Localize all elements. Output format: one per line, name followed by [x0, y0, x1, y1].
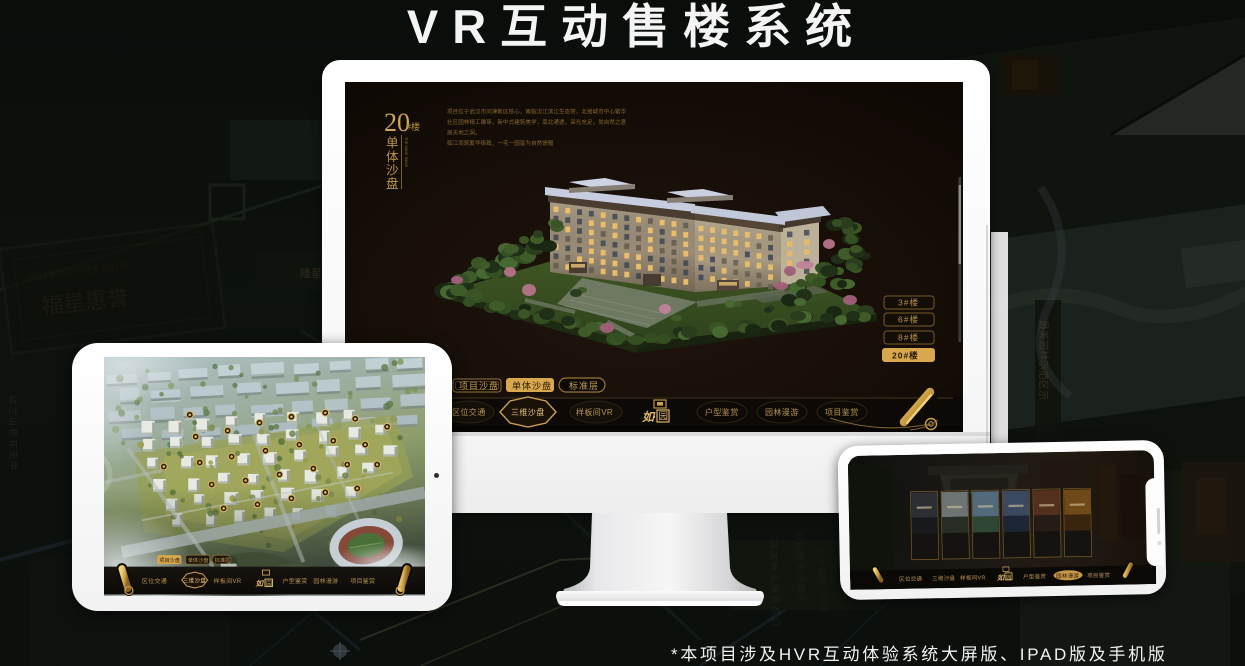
svg-text:样板间VR: 样板间VR: [214, 577, 242, 585]
svg-text:项目沙盘: 项目沙盘: [159, 556, 180, 564]
svg-text:户型鉴赏: 户型鉴赏: [705, 407, 739, 417]
svg-text:项目鉴赏: 项目鉴赏: [825, 407, 859, 417]
svg-text:项目鉴赏: 项目鉴赏: [350, 577, 375, 585]
svg-text:园: 园: [659, 412, 669, 423]
svg-text:户型鉴赏: 户型鉴赏: [282, 577, 307, 585]
svg-text:园林漫游: 园林漫游: [313, 577, 338, 585]
svg-text:盘: 盘: [386, 176, 399, 191]
svg-text:项目位于武汉市问津新区核心，南临汉江滨江生态带，北接城市中心: 项目位于武汉市问津新区核心，南临汉江滨江生态带，北接城市中心繁华: [447, 108, 627, 116]
svg-text:6#楼: 6#楼: [898, 315, 919, 325]
svg-text:园: 园: [266, 581, 272, 588]
svg-text:三维沙盘: 三维沙盘: [183, 577, 207, 585]
svg-text:园: 园: [1006, 574, 1012, 581]
svg-text:区位交通: 区位交通: [142, 577, 167, 585]
svg-text:项目沙盘: 项目沙盘: [459, 380, 499, 391]
svg-text:3#楼: 3#楼: [898, 298, 919, 308]
svg-text:临江而筑繁华极致，一宅一园皆为自然馈赠: 临江而筑繁华极致，一宅一园皆为自然馈赠: [447, 139, 553, 147]
svg-text:标准层: 标准层: [215, 556, 231, 564]
svg-text:社区园林精工雕琢，新中式建筑美学，南北通透，采光充足，尚自然: 社区园林精工雕琢，新中式建筑美学，南北通透，采光充足，尚自然之意: [447, 118, 627, 126]
svg-text:园林漫游: 园林漫游: [765, 407, 799, 417]
svg-text:THE SAND TABLE: THE SAND TABLE: [404, 137, 408, 168]
svg-text:标准层: 标准层: [569, 380, 599, 391]
svg-text:20#楼: 20#楼: [892, 351, 919, 361]
svg-text:体: 体: [386, 150, 399, 164]
svg-text:居天地之润。: 居天地之润。: [447, 129, 481, 137]
svg-text:样板间VR: 样板间VR: [576, 407, 613, 417]
svg-text:单体沙盘: 单体沙盘: [188, 556, 209, 564]
svg-text:单: 单: [386, 136, 399, 150]
svg-text:如: 如: [997, 573, 1005, 582]
svg-text:沙: 沙: [386, 164, 399, 178]
svg-text:#楼: #楼: [406, 121, 420, 132]
svg-text:区位交通: 区位交通: [452, 407, 486, 417]
svg-text:幼兰山色有无中: 幼兰山色有无中: [8, 395, 19, 472]
svg-text:三维沙盘: 三维沙盘: [511, 407, 545, 417]
svg-text:8#楼: 8#楼: [898, 333, 919, 343]
svg-text:单体沙盘: 单体沙盘: [512, 380, 552, 391]
